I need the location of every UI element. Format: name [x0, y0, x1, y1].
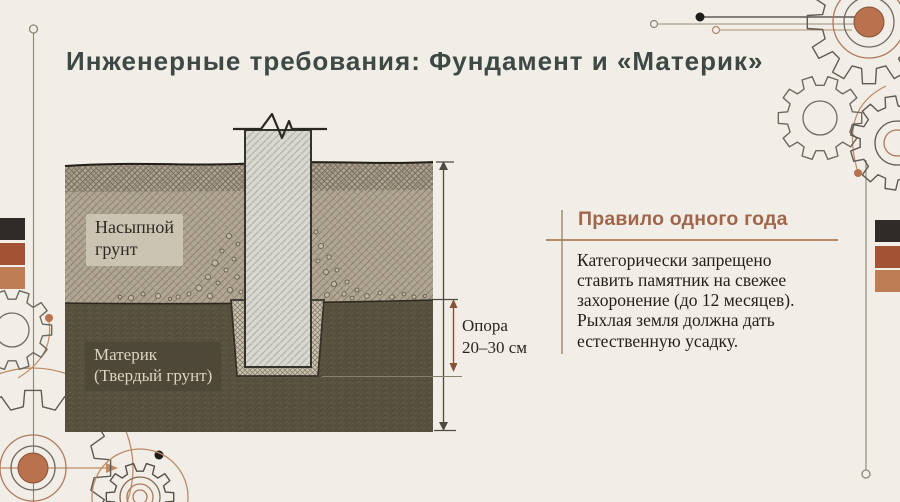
panel-accent-line [561, 210, 563, 354]
color-swatch-light [0, 267, 25, 289]
color-swatch-light [875, 270, 900, 292]
panel-body: Категорически запрещено ставить памятник… [577, 250, 847, 351]
dimension-arrow-icon [439, 422, 448, 431]
depth-dimension [434, 162, 456, 431]
support-dimension-label: Опора 20–30 см [462, 315, 527, 359]
panel-heading: Правило одного года [578, 208, 788, 231]
color-swatch-rust [0, 243, 25, 265]
color-swatch-dark [0, 218, 25, 240]
dimension-arrow-icon [450, 363, 458, 372]
color-swatch-rust [875, 246, 900, 268]
dimension-arrow-icon [450, 299, 458, 308]
color-swatch-dark [875, 220, 900, 242]
slide-title: Инженерные требования: Фундамент и «Мате… [66, 46, 763, 77]
slide: Инженерные требования: Фундамент и «Мате… [0, 0, 900, 502]
panel-divider [546, 239, 838, 241]
bottom-soil-label: Материк (Твердый грунт) [85, 342, 221, 391]
top-soil-label: Насыпной грунт [86, 214, 183, 266]
support-dimension [450, 299, 458, 372]
